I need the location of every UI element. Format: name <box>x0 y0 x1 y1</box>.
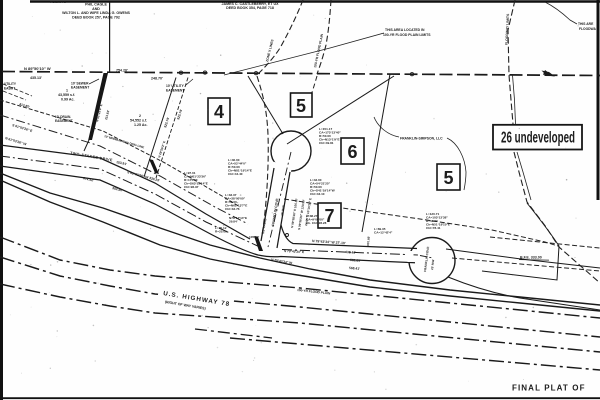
svg-text:531.85': 531.85' <box>350 258 361 263</box>
svg-text:105.89': 105.89' <box>249 235 259 239</box>
svg-text:DEED BOOK 257, PAGE 792: DEED BOOK 257, PAGE 792 <box>72 16 120 20</box>
svg-text:Chl=44.40: Chl=44.40 <box>228 172 243 176</box>
svg-text:26 undeveloped: 26 undeveloped <box>501 130 575 147</box>
svg-text:THIS ARE: THIS ARE <box>578 22 594 26</box>
svg-text:WILTON L. AND WIFE LINDA G. OW: WILTON L. AND WIFE LINDA G. OWENS <box>62 11 130 15</box>
svg-text:6: 6 <box>347 142 357 162</box>
svg-text:100-YR FLOOD PLAIN LIMITS: 100-YR FLOOD PLAIN LIMITS <box>383 33 431 37</box>
svg-text:DEED BOOK 354, PAGE 718: DEED BOOK 354, PAGE 718 <box>226 6 274 10</box>
svg-text:1: 1 <box>66 89 68 93</box>
svg-text:0.99 Ac.: 0.99 Ac. <box>61 98 74 102</box>
svg-text:2: 2 <box>139 114 141 118</box>
svg-text:EASEMENT: EASEMENT <box>71 86 89 90</box>
svg-text:EASEMENT: EASEMENT <box>166 89 184 93</box>
svg-text:248.70': 248.70' <box>151 77 163 81</box>
svg-text:43,559 s.f.: 43,559 s.f. <box>58 93 75 97</box>
svg-text:Chl=96.97: Chl=96.97 <box>184 185 199 189</box>
svg-text:EASEMENT: EASEMENT <box>55 119 73 123</box>
svg-text:5: 5 <box>296 96 306 116</box>
svg-text:435.13': 435.13' <box>30 76 42 80</box>
svg-text:Chl=78.41: Chl=78.41 <box>426 226 441 230</box>
svg-text:P.O.B. 24-B: P.O.B. 24-B <box>50 0 67 4</box>
svg-text:433.46': 433.46' <box>345 250 356 255</box>
svg-text:4: 4 <box>214 102 224 122</box>
svg-text:B.F.E. 333.00: B.F.E. 333.00 <box>520 255 542 259</box>
svg-text:FINAL PLAT OF: FINAL PLAT OF <box>512 384 586 393</box>
svg-text:5: 5 <box>443 168 453 188</box>
svg-text:N 89°50'10" W: N 89°50'10" W <box>24 66 51 71</box>
svg-text:R=25.00: R=25.00 <box>215 230 227 234</box>
svg-text:29.84': 29.84' <box>229 220 238 224</box>
svg-text:754.20': 754.20' <box>116 68 128 72</box>
svg-text:THIS AREA LOCATED IN: THIS AREA LOCATED IN <box>385 28 425 32</box>
svg-text:Ch. Chl=28.28: Ch. Chl=28.28 <box>306 221 327 225</box>
svg-text:568.41': 568.41' <box>349 266 360 271</box>
svg-text:Chl=32.76: Chl=32.76 <box>225 207 240 211</box>
svg-text:Chl=43.10: Chl=43.10 <box>310 192 325 196</box>
svg-text:Chl=49.81: Chl=49.81 <box>319 141 334 145</box>
svg-text:FRANKLIN-SIMPSON, LLC: FRANKLIN-SIMPSON, LLC <box>400 137 443 141</box>
svg-text:FLOODWA: FLOODWA <box>579 27 596 31</box>
svg-text:54,552 s.f.: 54,552 s.f. <box>130 119 147 123</box>
svg-text:AND: AND <box>92 7 100 11</box>
svg-text:10' UTILITY: 10' UTILITY <box>166 84 185 88</box>
svg-text:1.25 Ac.: 1.25 Ac. <box>134 123 147 127</box>
svg-text:CA=12°42'4": CA=12°42'4" <box>374 231 393 235</box>
